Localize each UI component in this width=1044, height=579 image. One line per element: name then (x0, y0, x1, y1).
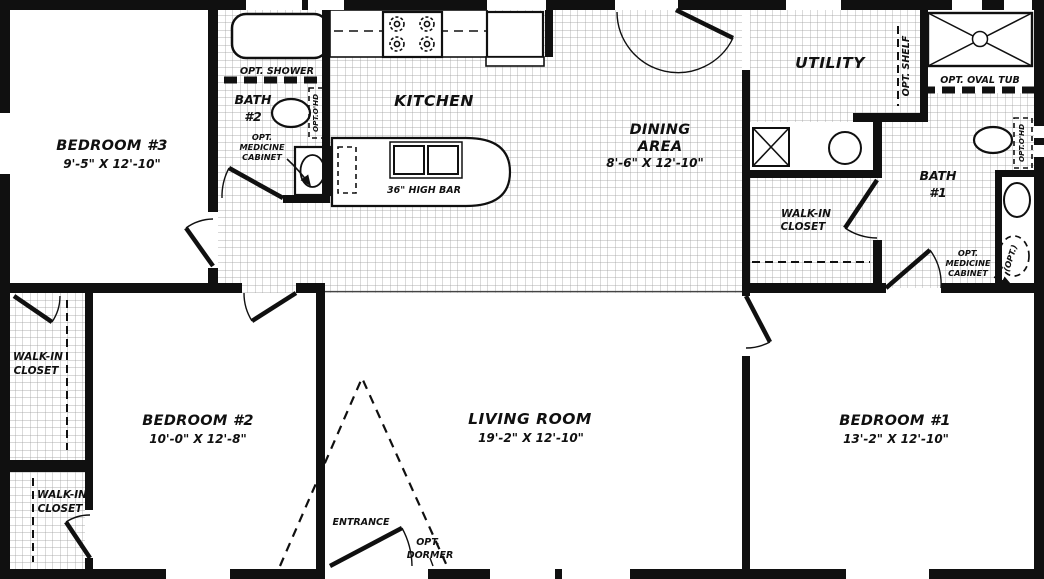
window-bath1-b (1034, 145, 1044, 157)
bath1-medicine-label-2: MEDICINE (945, 258, 990, 268)
main-wall-left (10, 283, 242, 293)
opt-dormer-label-2: DORMER (407, 550, 454, 561)
bath2-medicine-label-2: MEDICINE (239, 142, 284, 152)
bedroom3-door (186, 219, 213, 266)
closet-bath1-wall-upper (873, 122, 882, 178)
bedroom1-door (746, 296, 770, 348)
refrigerator (487, 12, 543, 57)
walkin-right-label-2: CLOSET (781, 221, 827, 233)
bath2-label-2: #2 (244, 109, 261, 124)
dining-dims: 8'-6" X 12'-10" (606, 156, 704, 170)
window-kitchen (487, 0, 546, 10)
bath2-tub (232, 14, 328, 58)
oval-tub-drain (973, 32, 988, 47)
island-sink-left (394, 146, 424, 174)
window-tub-b (1004, 0, 1032, 10)
window-bath2-b (308, 0, 344, 10)
bedroom3-dims: 9'-5" X 12'-10" (63, 157, 161, 171)
back-door-opening (615, 0, 678, 10)
fridge-stub-wall (545, 10, 553, 57)
walkin-left-top-label-2: CLOSET (14, 365, 60, 377)
closets-right-wall (85, 293, 93, 510)
alcove-closet-divider (742, 170, 873, 178)
bedroom1-label: BEDROOM #1 (839, 413, 950, 429)
bedroom2-door (244, 293, 296, 321)
opt-oval-tub-label: OPT. OVAL TUB (940, 75, 1019, 86)
bath2-kitchen-wall (322, 10, 330, 200)
bath1-label-2: #1 (929, 185, 946, 200)
walkin-right-label-1: WALK-IN (781, 208, 831, 220)
high-bar-label: 36" HIGH BAR (387, 185, 461, 196)
bath1-ohd-label: OPT.O'HD (1017, 124, 1026, 162)
bath2-sink (272, 99, 310, 127)
bedroom2-living-wall (316, 293, 325, 569)
bedroom3-right-wall (208, 10, 218, 212)
bedroom1-left-wall (742, 356, 750, 569)
kitchen-label: KITCHEN (394, 92, 474, 110)
floor-plan: BEDROOM #3 9'-5" X 12'-10" BATH #2 KITCH… (0, 0, 1044, 579)
entrance-door (330, 528, 412, 566)
window-bath1-a (1034, 126, 1044, 138)
window-living-a (490, 569, 555, 579)
window-bedroom3 (0, 113, 10, 174)
living-room-label: LIVING ROOM (468, 410, 592, 428)
bedroom3-label: BEDROOM #3 (56, 138, 167, 154)
entrance-label: ENTRANCE (333, 517, 391, 528)
bedroom1-top-wall-right (941, 283, 1034, 293)
bath2-toilet (301, 155, 325, 187)
bath2-medicine-label-1: OPT. (252, 132, 272, 142)
window-utility (786, 0, 841, 10)
dining-label-2: AREA (637, 139, 683, 155)
floor-plan-svg: BEDROOM #3 9'-5" X 12'-10" BATH #2 KITCH… (0, 0, 1044, 579)
bath1-medicine-label-3: CABINET (948, 268, 989, 278)
refrigerator-front (486, 57, 544, 66)
walkin-left-top-label-1: WALK-IN (13, 351, 63, 363)
utility-alcove (750, 122, 873, 170)
bath1-medicine-label-1: OPT. (958, 248, 978, 258)
bath2-ohd-label: OPT.O'HD (311, 94, 320, 132)
window-bath2-a (246, 0, 302, 10)
bath1-label-1: BATH (920, 168, 958, 183)
utility-left-wall (742, 70, 750, 296)
bath1-sink (974, 127, 1012, 153)
utility-right-wall (920, 10, 928, 122)
opt-shelf-label: OPT. SHELF (901, 35, 912, 96)
opt-shower-label: OPT. SHOWER (240, 66, 314, 77)
walkin-left-bottom-label-1: WALK-IN (37, 489, 87, 501)
entrance-opening (325, 569, 428, 579)
utility-label: UTILITY (795, 54, 866, 72)
window-tub-a (952, 0, 982, 10)
window-bedroom1 (846, 569, 929, 579)
living-room-dims: 19'-2" X 12'-10" (478, 431, 584, 445)
walkin-left-bottom-floor (10, 472, 85, 569)
opt-dormer-label-1: OPT. (416, 537, 440, 548)
bath2-label-1: BATH (235, 92, 273, 107)
bedroom2-label: BEDROOM #2 (142, 413, 253, 429)
closets-divider-wall (10, 460, 93, 472)
bath2-medicine-label-3: CABINET (242, 152, 283, 162)
walkin-left-bottom-label-2: CLOSET (38, 503, 84, 515)
bedroom1-top-wall-left (742, 283, 886, 293)
island-sink-right (428, 146, 458, 174)
bedroom2-dims: 10'-0" X 12'-8" (149, 432, 247, 446)
dining-label-1: DINING (630, 122, 691, 138)
window-living-b (562, 569, 630, 579)
window-bedroom2 (166, 569, 230, 579)
toilet-room-wall (995, 177, 1002, 288)
bedroom1-dims: 13'-2" X 12'-10" (843, 432, 949, 446)
